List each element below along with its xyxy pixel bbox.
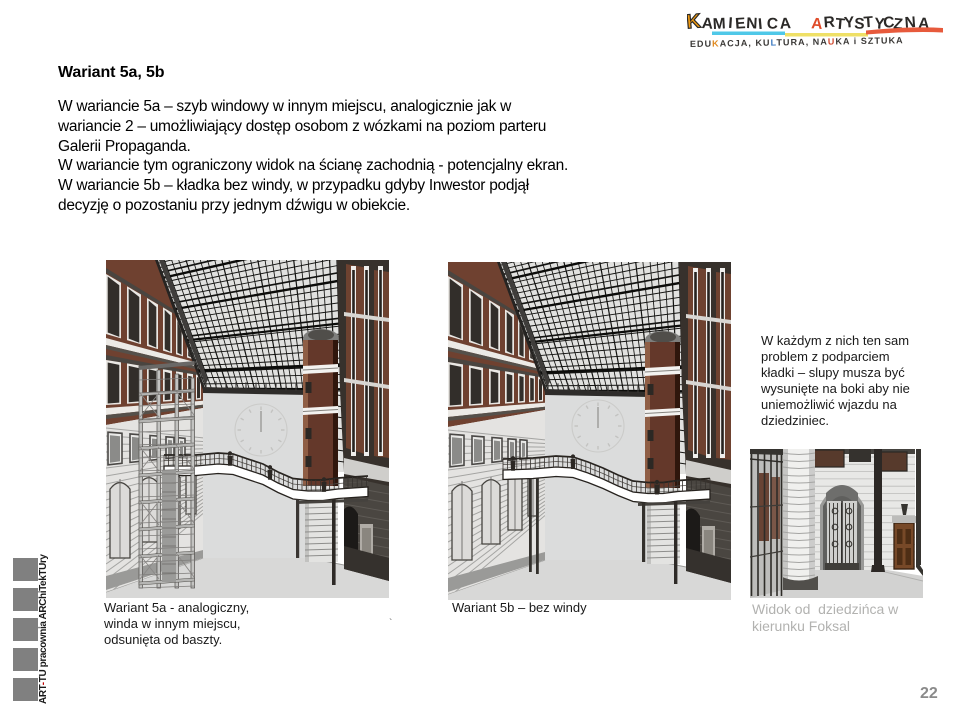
svg-text:K: K [687,10,702,33]
svg-text:EDUKACJA, KULTURA, NAUKA i SZT: EDUKACJA, KULTURA, NAUKA i SZTUKA [690,35,904,49]
svg-text:I: I [728,15,733,32]
svg-text:M: M [712,15,726,33]
svg-text:I: I [757,16,763,33]
svg-text:R: R [823,14,835,32]
svg-text:C: C [766,15,778,33]
svg-text:E: E [735,15,747,33]
svg-text:A: A [779,15,791,33]
svg-text:A: A [811,15,823,33]
svg-text:T: T [863,14,874,32]
svg-text:N: N [746,15,758,33]
